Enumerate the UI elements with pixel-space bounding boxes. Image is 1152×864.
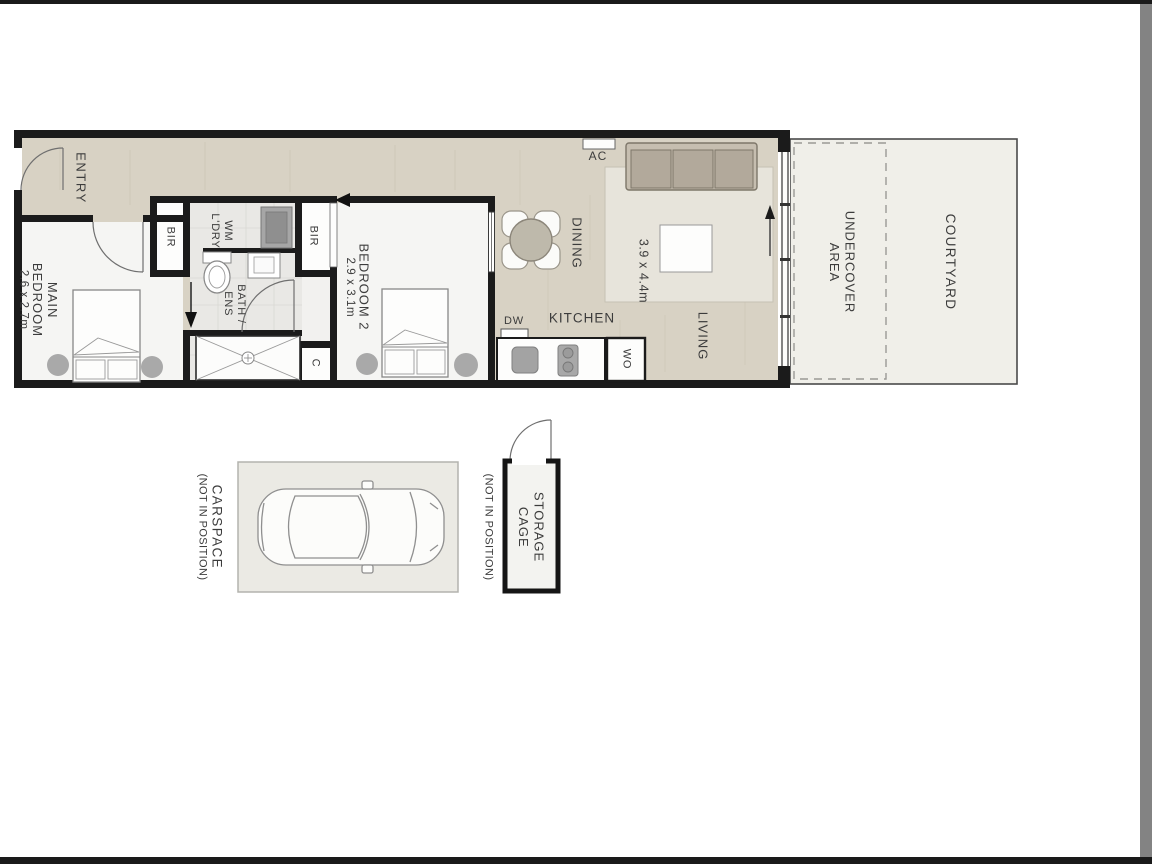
dining-table-set xyxy=(502,211,560,269)
floorplan-drawing xyxy=(0,0,1152,864)
washing-machine xyxy=(261,207,292,248)
storage-cage xyxy=(505,456,558,591)
ac-unit xyxy=(583,139,615,149)
sofa xyxy=(626,143,757,190)
toilet xyxy=(203,252,231,293)
vanity-basin xyxy=(248,253,280,278)
shower xyxy=(196,336,300,380)
storage-cage-door xyxy=(510,420,551,461)
coffee-table xyxy=(660,225,712,272)
car xyxy=(258,481,444,573)
sliding-glass-wall xyxy=(780,152,790,366)
floorplan-page: ENTRY MAIN BEDROOM 2.6 x 2.7m BIR WM L'D… xyxy=(0,0,1152,864)
